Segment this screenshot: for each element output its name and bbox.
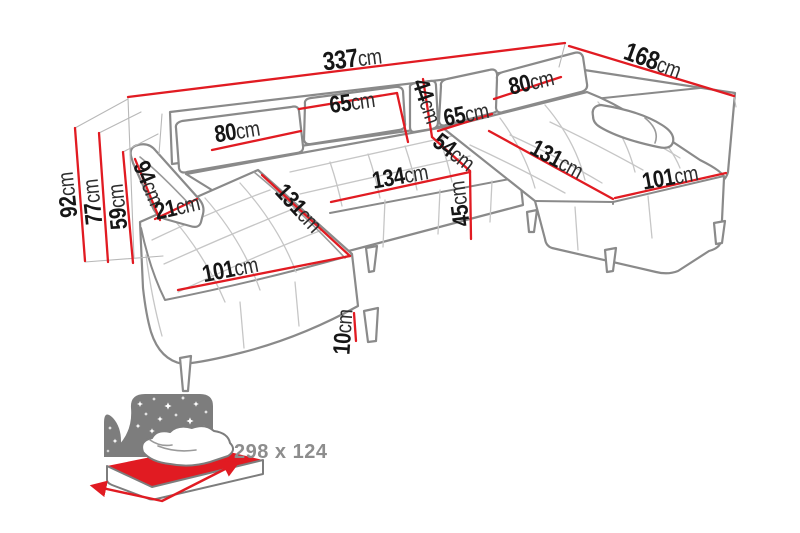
dim-unit: cm: [333, 309, 358, 334]
leg: [180, 356, 191, 391]
dim-value: 10: [328, 332, 357, 356]
leg: [527, 210, 537, 232]
dim-unit: cm: [104, 183, 130, 209]
dim-value: 59: [104, 207, 133, 231]
dim-unit: cm: [402, 161, 430, 189]
dim-unit: cm: [446, 180, 473, 207]
dim-unit: cm: [463, 99, 491, 127]
dim-value: 337: [321, 44, 360, 77]
leg: [366, 246, 377, 272]
dim-unit: cm: [232, 253, 260, 281]
dim-unit: cm: [79, 178, 105, 204]
sleep-function-icon: 298 x 124: [93, 394, 328, 501]
dim-unit: cm: [349, 89, 376, 116]
sofa-dimension-diagram: 337cm 168cm 92cm 77cm 59cm 94cm 21cm 80c…: [0, 0, 800, 533]
dim-label-backrest-height: 77cm: [76, 178, 108, 226]
dim-value: 45: [446, 203, 476, 228]
leg: [364, 308, 378, 342]
leg: [714, 221, 725, 244]
dim-label-overall-width: 337cm: [321, 41, 383, 77]
leg: [605, 248, 616, 272]
dim-label-seat-back-height: 59cm: [101, 183, 133, 231]
dim-label-seat-height: 45cm: [443, 180, 475, 228]
dim-value: 101: [640, 163, 677, 195]
sleeping-area-size: 298 x 124: [234, 441, 328, 463]
dim-label-overall-height: 92cm: [51, 171, 83, 219]
dim-unit: cm: [672, 162, 700, 190]
dim-unit: cm: [234, 117, 261, 144]
dim-unit: cm: [54, 171, 80, 197]
dim-unit: cm: [357, 45, 384, 72]
